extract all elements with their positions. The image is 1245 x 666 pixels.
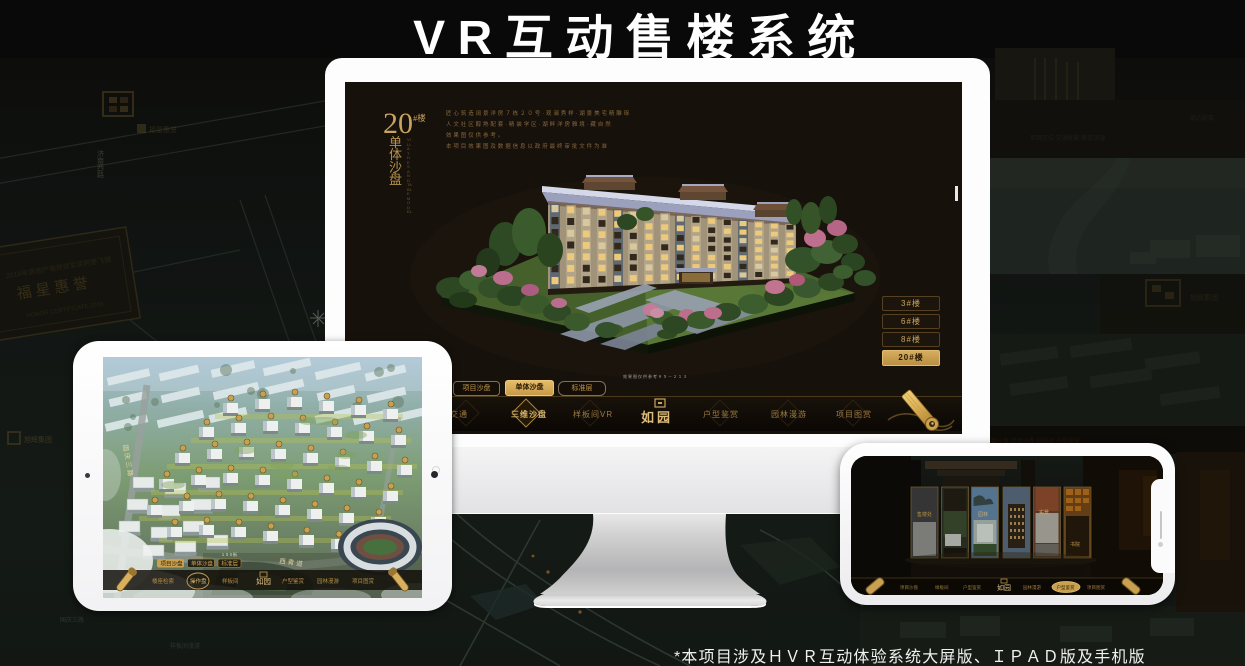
svg-text:周边配套: 周边配套 bbox=[1190, 114, 1214, 122]
svg-text:项目沙盘: 项目沙盘 bbox=[900, 584, 918, 591]
svg-text:楼座检索: 楼座检索 bbox=[152, 577, 175, 585]
svg-text:样板间: 样板间 bbox=[935, 584, 949, 591]
svg-text:旭辉集团: 旭辉集团 bbox=[1190, 293, 1218, 302]
svg-text:国庆三路: 国庆三路 bbox=[60, 616, 84, 624]
svg-text:样板间: 样板间 bbox=[222, 577, 239, 585]
svg-text:操作盘: 操作盘 bbox=[190, 577, 207, 585]
svg-text:项目区位 交通配套 教育资源: 项目区位 交通配套 教育资源 bbox=[1030, 134, 1105, 142]
svg-text:济南西路: 济南西路 bbox=[97, 149, 105, 179]
svg-text:福星惠誉: 福星惠誉 bbox=[149, 125, 177, 134]
svg-text:项目图赏: 项目图赏 bbox=[1087, 584, 1105, 591]
svg-text:如园: 如园 bbox=[997, 583, 1011, 592]
svg-text:旭辉集团: 旭辉集团 bbox=[24, 435, 52, 444]
svg-text:项目沙盘: 项目沙盘 bbox=[161, 560, 184, 568]
svg-text:如园: 如园 bbox=[256, 576, 271, 586]
svg-text:户型鉴赏: 户型鉴赏 bbox=[282, 577, 305, 585]
svg-text:单体沙盘: 单体沙盘 bbox=[191, 560, 214, 568]
svg-text:户型鉴赏: 户型鉴赏 bbox=[963, 584, 981, 591]
svg-text:样板间漫游: 样板间漫游 bbox=[170, 642, 200, 650]
svg-text:标准层: 标准层 bbox=[222, 560, 239, 568]
svg-text:１５０街: １５０街 bbox=[221, 551, 237, 557]
svg-text:户型鉴赏: 户型鉴赏 bbox=[1057, 584, 1075, 591]
svg-text:项目图赏: 项目图赏 bbox=[352, 577, 375, 585]
svg-text:园林漫游: 园林漫游 bbox=[317, 577, 340, 585]
svg-text:园林漫游: 园林漫游 bbox=[1023, 584, 1041, 591]
